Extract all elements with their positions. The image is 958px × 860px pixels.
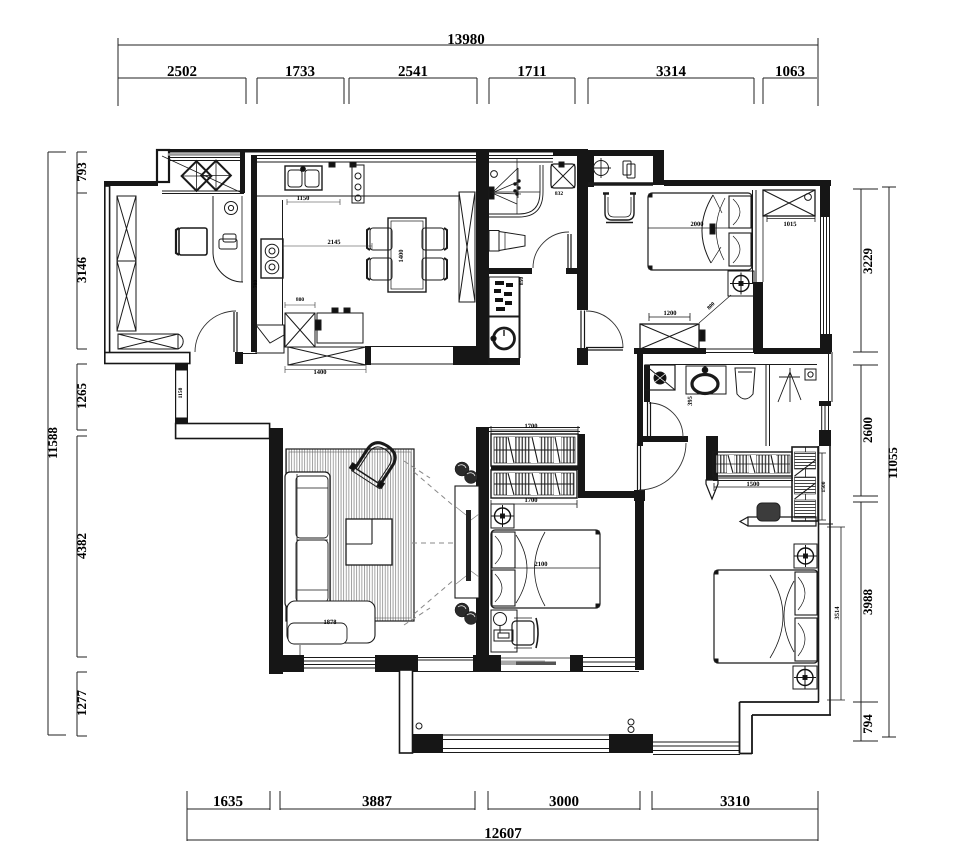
- svg-text:3000: 3000: [549, 794, 579, 810]
- svg-text:1878: 1878: [324, 619, 338, 626]
- svg-text:3887: 3887: [362, 794, 393, 810]
- svg-text:11588: 11588: [45, 427, 60, 459]
- svg-text:1063: 1063: [775, 64, 805, 80]
- svg-text:1400: 1400: [314, 369, 327, 376]
- svg-text:1500: 1500: [747, 481, 760, 488]
- svg-text:3988: 3988: [860, 589, 875, 616]
- svg-text:3310: 3310: [720, 794, 750, 810]
- svg-text:1015: 1015: [784, 221, 798, 228]
- svg-text:700: 700: [253, 280, 259, 289]
- svg-text:3229: 3229: [860, 248, 875, 275]
- svg-text:1635: 1635: [213, 794, 243, 810]
- svg-text:1711: 1711: [517, 64, 546, 80]
- svg-text:793: 793: [74, 162, 89, 182]
- svg-text:2000: 2000: [691, 221, 704, 228]
- svg-text:1200: 1200: [664, 310, 677, 317]
- svg-text:794: 794: [860, 714, 875, 734]
- svg-text:11055: 11055: [885, 447, 900, 479]
- svg-text:2600: 2600: [860, 417, 875, 443]
- svg-text:12607: 12607: [484, 826, 522, 842]
- svg-text:3146: 3146: [74, 257, 89, 284]
- svg-text:395: 395: [687, 395, 694, 406]
- svg-text:2502: 2502: [167, 64, 197, 80]
- svg-text:13980: 13980: [447, 32, 485, 48]
- svg-text:2145: 2145: [328, 239, 342, 246]
- svg-text:800: 800: [296, 297, 305, 303]
- svg-text:1400: 1400: [398, 250, 405, 263]
- svg-text:2541: 2541: [398, 64, 428, 80]
- svg-text:3314: 3314: [656, 64, 687, 80]
- svg-text:1733: 1733: [285, 64, 315, 80]
- svg-text:1150: 1150: [178, 387, 184, 398]
- svg-text:1700: 1700: [525, 497, 538, 504]
- svg-text:850: 850: [519, 277, 525, 286]
- svg-text:1265: 1265: [74, 383, 89, 410]
- svg-text:1277: 1277: [74, 690, 89, 717]
- svg-text:2100: 2100: [535, 561, 548, 568]
- svg-text:3514: 3514: [834, 606, 841, 620]
- svg-text:1700: 1700: [525, 423, 538, 430]
- svg-text:800: 800: [706, 301, 716, 311]
- svg-text:1150: 1150: [297, 195, 310, 202]
- svg-text:1500: 1500: [821, 481, 827, 492]
- svg-text:4382: 4382: [74, 533, 89, 559]
- svg-text:832: 832: [555, 191, 564, 197]
